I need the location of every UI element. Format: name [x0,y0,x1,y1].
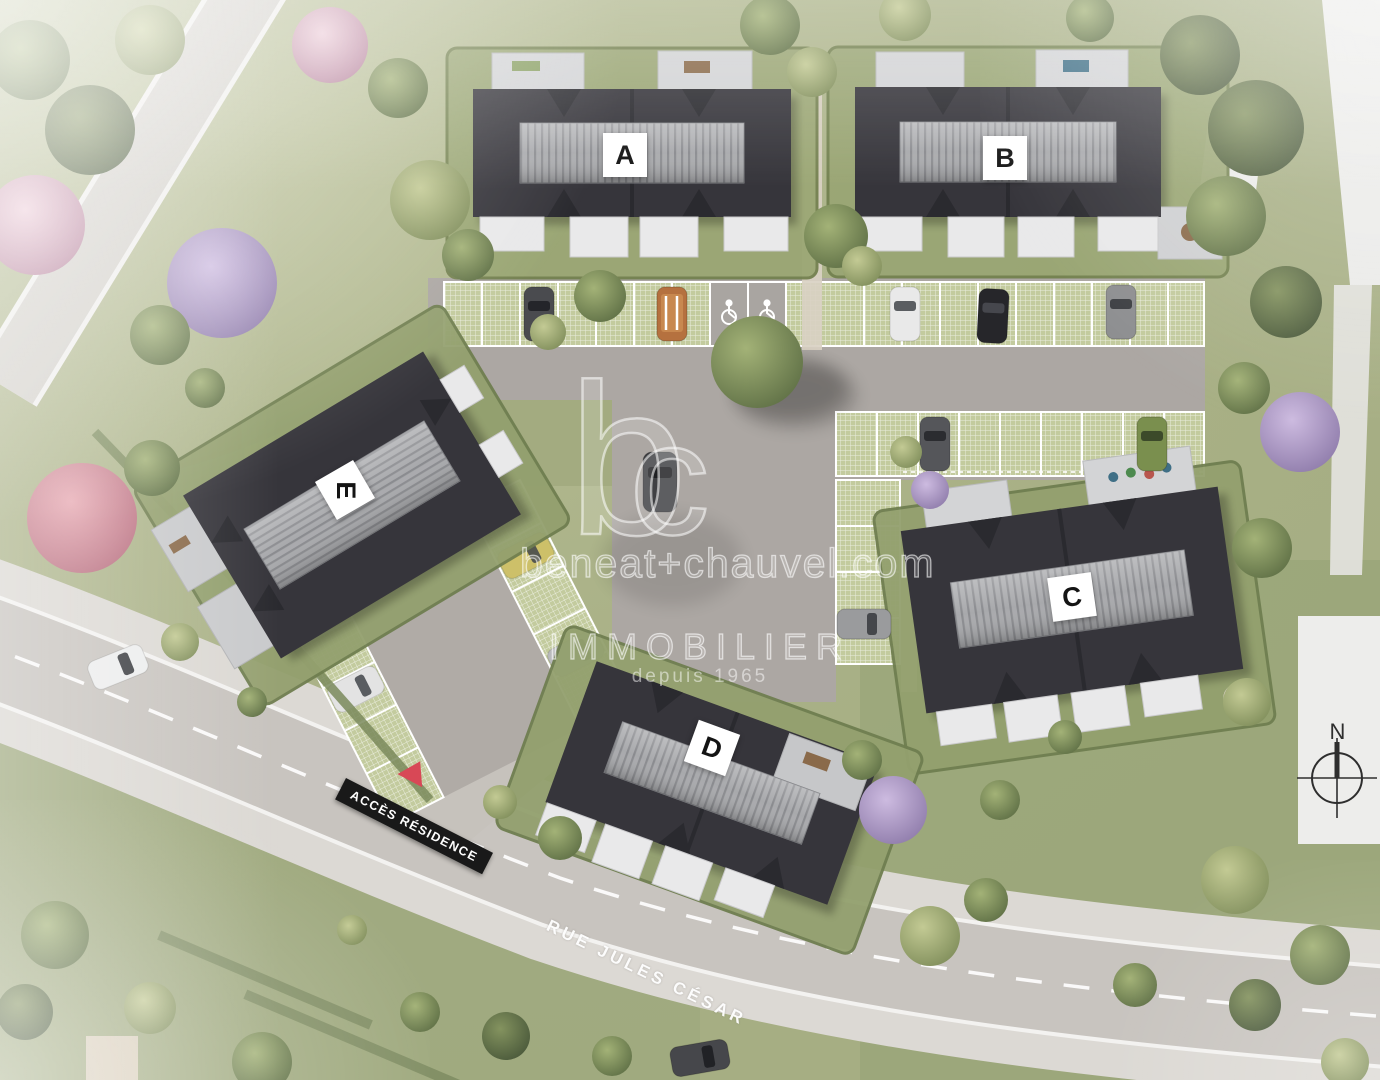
compass-north-label: N [1330,722,1347,742]
parked-car [920,417,950,471]
site-plan-graphic [0,0,1380,1080]
building-label-c: C [1047,572,1097,622]
parked-car [643,452,677,512]
building-label-b: B [983,136,1027,180]
parked-car [1106,285,1136,339]
parked-car [1137,417,1167,471]
parked-car [890,287,920,341]
site-plan: bc beneat+chauvel.com IMMOBILIER depuis … [0,0,1380,1080]
parked-car [837,609,891,639]
parked-car [657,287,687,341]
building-label-a: A [603,133,647,177]
parked-car [977,288,1010,343]
building-b [828,47,1228,277]
compass: N [1300,722,1376,834]
